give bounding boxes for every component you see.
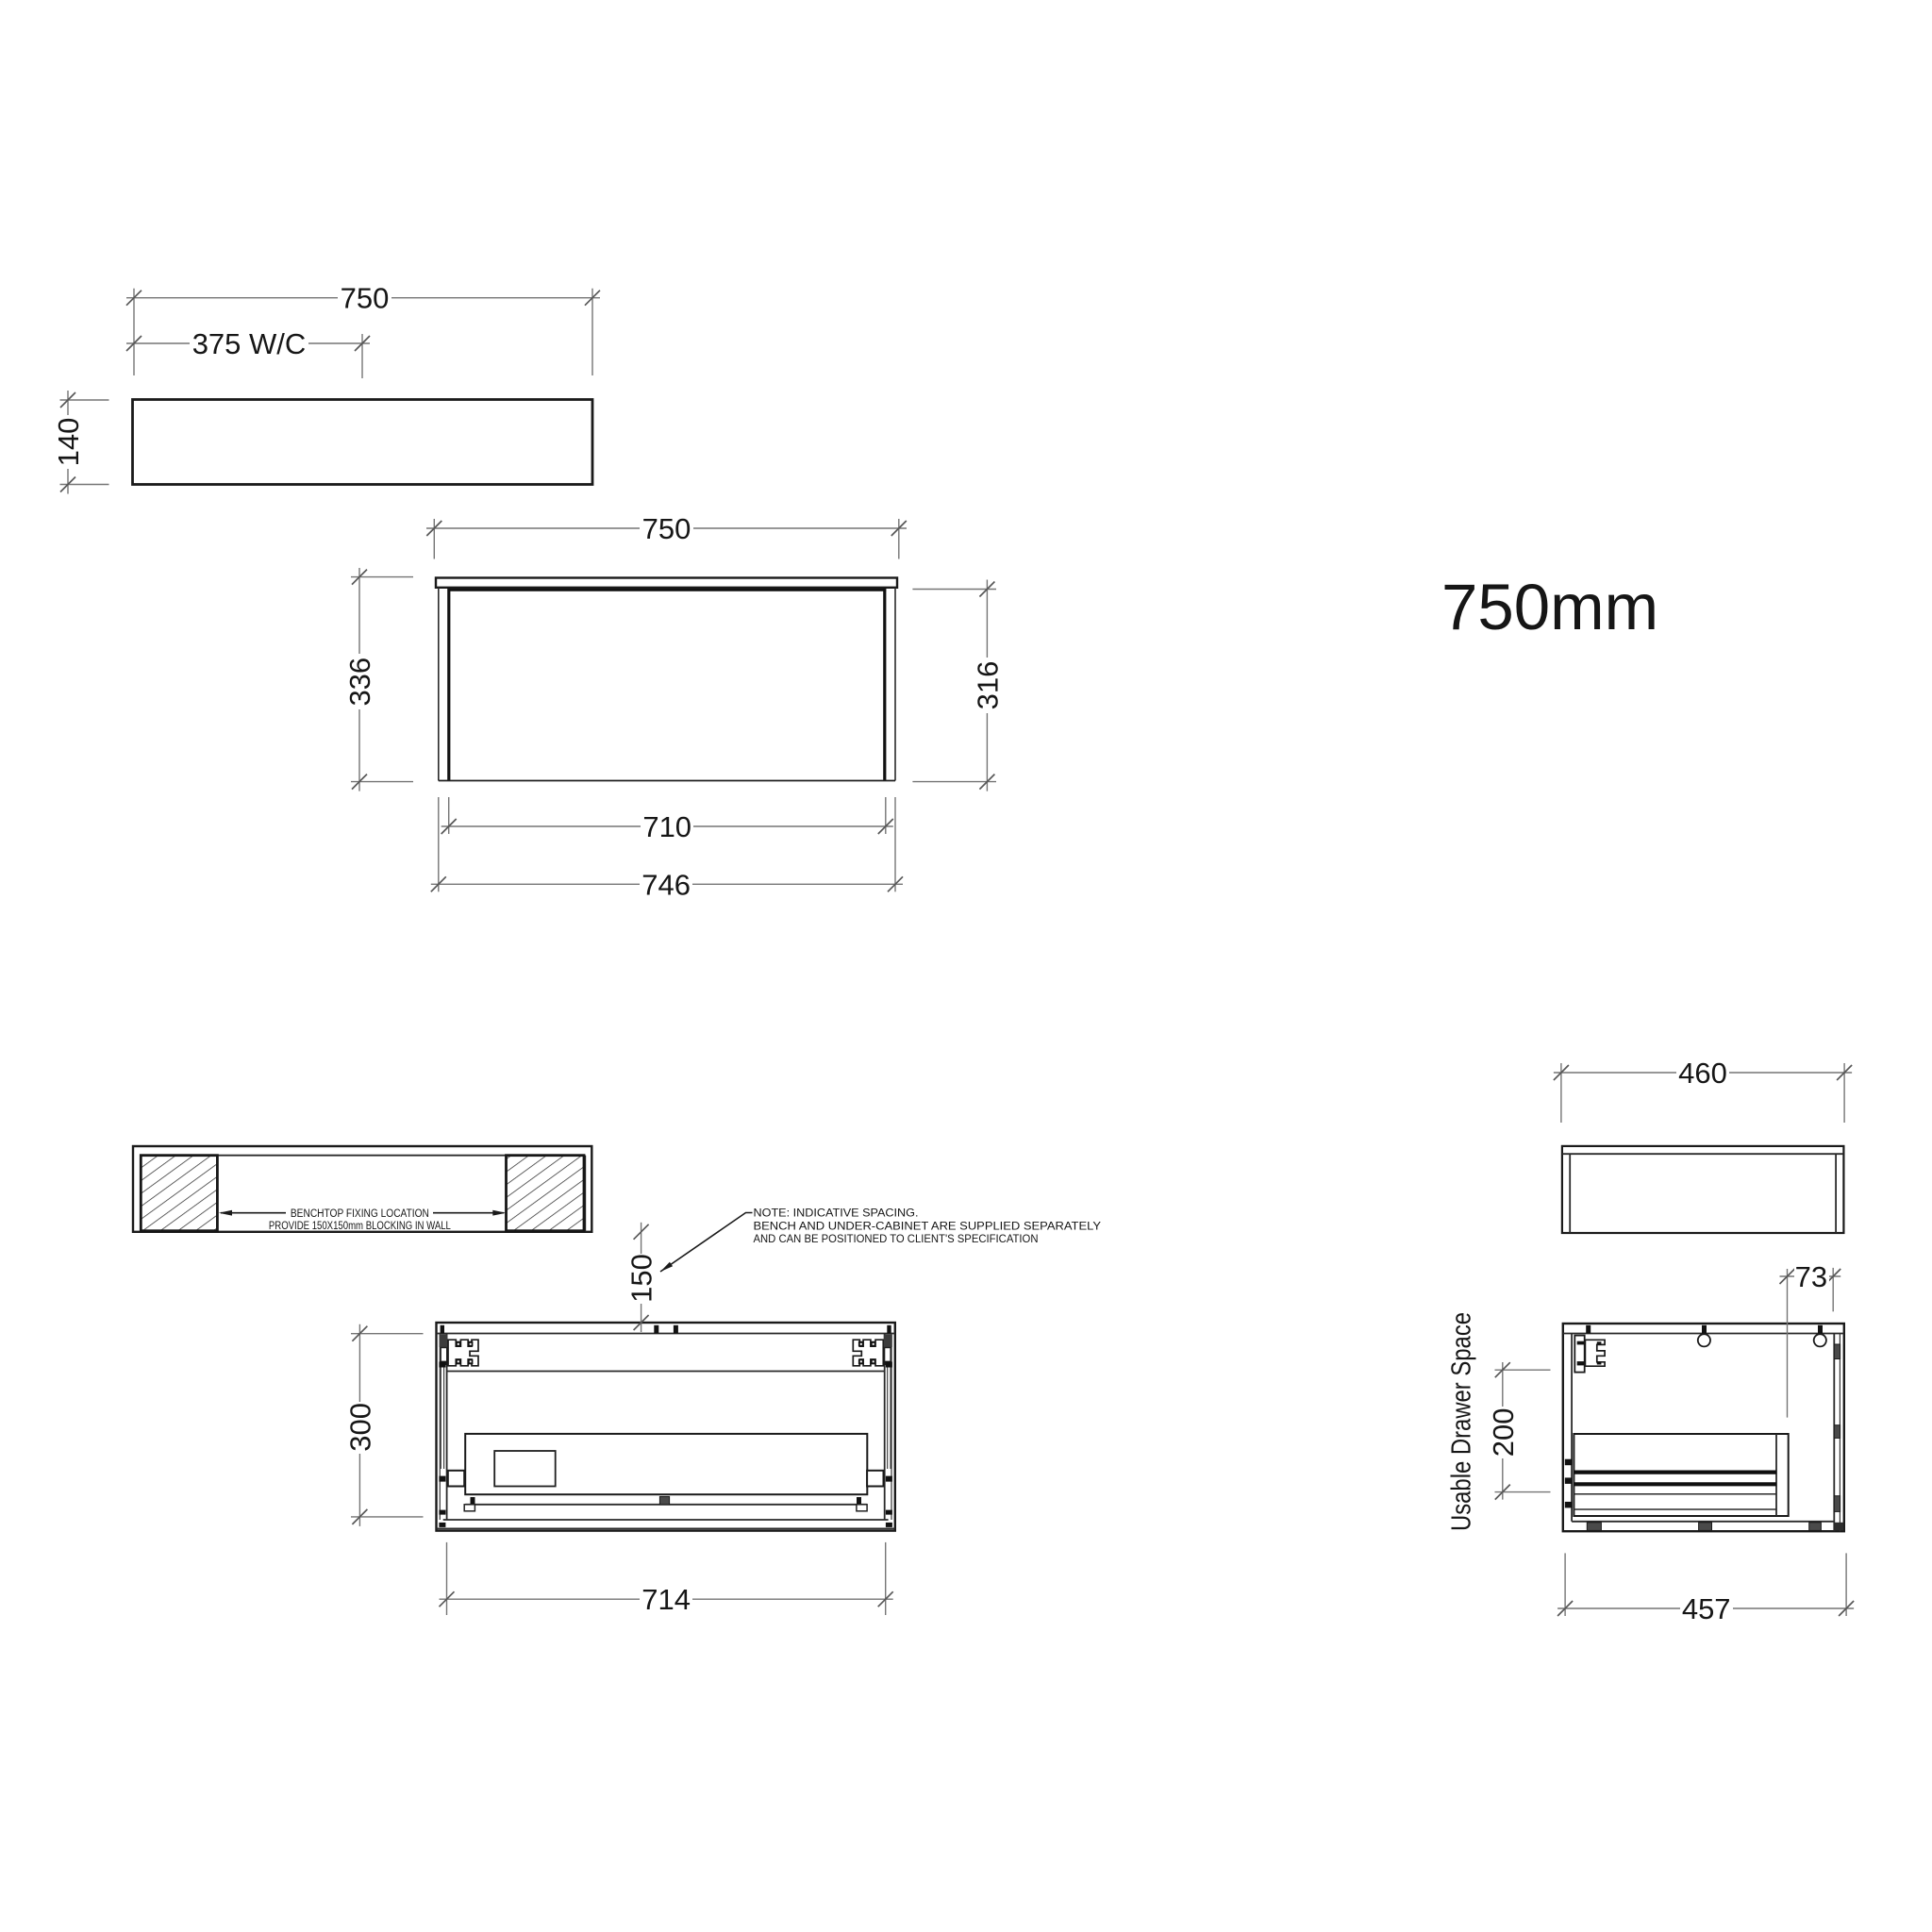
svg-text:150: 150 (625, 1254, 658, 1303)
svg-text:BENCH AND UNDER-CABINET ARE SU: BENCH AND UNDER-CABINET ARE SUPPLIED SEP… (754, 1219, 1102, 1232)
svg-text:300: 300 (343, 1403, 376, 1452)
svg-text:AND CAN BE POSITIONED TO CLIEN: AND CAN BE POSITIONED TO CLIENT'S SPECIF… (754, 1232, 1039, 1245)
svg-text:NOTE: INDICATIVE SPACING.: NOTE: INDICATIVE SPACING. (754, 1207, 919, 1220)
svg-text:714: 714 (641, 1583, 691, 1616)
svg-text:316: 316 (971, 661, 1004, 710)
svg-text:750mm: 750mm (1441, 571, 1658, 643)
svg-text:750: 750 (642, 512, 691, 545)
svg-text:710: 710 (642, 810, 691, 843)
svg-text:375 W/C: 375 W/C (192, 327, 307, 360)
svg-text:140: 140 (52, 418, 85, 467)
svg-text:336: 336 (343, 658, 376, 707)
svg-text:PROVIDE 150X150mm BLOCKING IN: PROVIDE 150X150mm BLOCKING IN WALL (269, 1219, 451, 1232)
svg-text:Usable Drawer Space: Usable Drawer Space (1446, 1312, 1476, 1531)
svg-text:200: 200 (1487, 1408, 1520, 1457)
svg-text:BENCHTOP FIXING LOCATION: BENCHTOP FIXING LOCATION (291, 1207, 429, 1220)
svg-text:460: 460 (1678, 1057, 1727, 1090)
svg-text:746: 746 (641, 868, 691, 901)
svg-text:750: 750 (341, 282, 390, 315)
svg-text:457: 457 (1682, 1592, 1731, 1625)
svg-text:73: 73 (1795, 1260, 1827, 1293)
